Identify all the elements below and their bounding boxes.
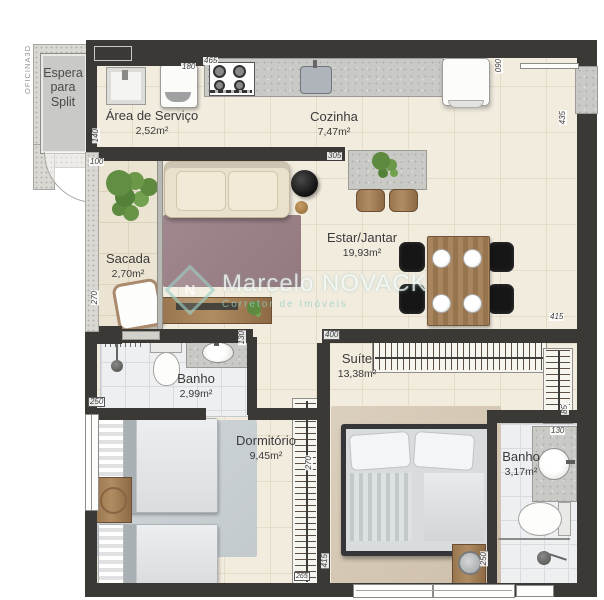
plate-icon [463,249,482,268]
sofa-cushion-icon [228,171,278,211]
closet-rack-horizontal [372,340,547,373]
kitchen-faucet-icon [313,60,317,68]
wall-right [577,44,597,585]
dim-265: 265 [294,572,310,581]
room-area: 9,45m² [222,450,310,462]
wall-bath1-south-b [248,408,318,420]
room-label-estar: Estar/Jantar 19,93m² [314,231,410,259]
laundry-faucet-icon [122,70,128,80]
room-label-cozinha: Cozinha 7,47m² [292,110,376,138]
dim-140: 140 [92,128,100,143]
refrigerator-handle-icon [448,100,484,108]
dim-305: 305 [327,152,342,160]
room-name: Estar/Jantar [314,231,410,246]
single-bed-icon [98,524,218,585]
balcony-glass-door [157,161,163,330]
room-label-banho1: Banho 2,99m² [156,372,236,400]
room-label-banho2: Banho 3,17m² [490,450,552,478]
bath2-window [516,585,554,597]
room-label-sacada: Sacada 2,70m² [98,252,158,280]
wall-mid-left [86,329,253,343]
dim-250-banho2: 250 [480,551,488,566]
dim-130-banho2: 130 [550,427,565,435]
wall-bath1-right [247,337,257,415]
room-name: Sacada [98,252,158,267]
double-bed-icon [341,424,493,556]
plate-icon [432,294,451,313]
kitchen-window [520,63,579,69]
console-plant-icon [247,301,261,315]
wall-service-south [86,147,345,161]
bed-pillow-icon [413,431,475,471]
dim-100: 100 [89,158,104,166]
dim-270-suite: 270 [305,455,313,470]
nightstand-tray-icon [100,487,127,514]
room-area: 19,93m² [314,247,410,259]
dim-85: 85 [561,404,569,415]
dim-415-suite: 415 [321,553,329,568]
shower-rod [498,538,570,540]
wardrobe [292,398,319,585]
shower-head-icon [111,360,123,372]
floor-plan: Espera para Split OFICINA3D [0,0,604,600]
bed-pillow-icon [99,525,124,584]
room-name: Área de Serviço [96,109,208,124]
balcony-rail [122,331,160,340]
bed-duvet-icon [136,525,217,584]
balcony-plant-icon [106,170,132,196]
dining-chair-icon [488,284,514,314]
bedroom-window [85,414,99,511]
cooktop-controls [210,90,252,93]
room-area: 2,99m² [156,388,236,400]
bed-pillow-icon [349,431,411,471]
side-table-icon [291,170,318,197]
espera-name: Espera para Split [40,66,86,109]
bath2-faucet-icon [566,460,575,464]
room-label-suite: Suíte 13,38m² [322,352,392,380]
island-plant-icon [372,152,390,170]
room-label-area-servico: Área de Serviço 2,52m² [96,109,208,137]
pouf-icon [295,201,308,214]
plate-icon [463,294,482,313]
room-label-espera: Espera para Split [40,66,86,109]
living-rug [163,215,301,287]
dim-415-estar: 415 [549,313,564,321]
refrigerator-icon [442,58,490,106]
room-name: Cozinha [292,110,376,125]
duct-outline [94,46,132,61]
room-area: 3,17m² [490,466,552,478]
room-area: 7,47m² [292,126,376,138]
room-name: Banho [490,450,552,465]
plate-icon [432,249,451,268]
dim-465: 465 [203,57,218,65]
bed-blanket-icon [124,525,136,584]
toilet-bowl-icon [518,502,562,536]
dim-250-banho1: 250 [88,397,105,407]
window-sash-line [356,590,512,591]
bed-duvet-icon [136,419,217,512]
room-area: 13,38m² [322,368,392,380]
bar-stool-icon [356,189,385,212]
kitchen-sink-icon [300,66,332,94]
wall-mid-right [322,329,577,343]
dim-435: 435 [559,110,567,125]
dim-270-sacada: 270 [91,290,99,305]
room-name: Dormitório [222,434,310,449]
room-name: Suíte [322,352,392,367]
tv-icon [176,303,238,310]
room-area: 2,52m² [96,125,208,137]
brand-vertical: OFICINA3D [23,45,32,94]
wall-bath2-left [487,423,497,585]
window-sill-right [575,66,598,114]
bed-throw-icon [350,473,412,541]
dim-130-banho1: 130 [238,330,246,345]
cooktop-burner-icon [213,65,226,78]
sofa-cushion-icon [176,171,226,211]
suite-window [353,584,515,598]
dining-chair-icon [488,242,514,272]
dining-chair-icon [399,284,425,314]
room-name: Banho [156,372,236,387]
dim-090: 090 [495,58,503,73]
bar-stool-icon [389,189,418,212]
window-mullion [432,585,437,597]
wall-bath1-south-a [86,408,206,420]
closet-rail [375,357,544,359]
wall-left-lower [85,508,97,585]
dim-180: 180 [181,63,196,71]
cooktop-burner-icon [233,65,246,78]
room-label-dormitorio: Dormitório 9,45m² [222,434,310,462]
bed-duvet-icon [424,473,484,541]
wardrobe-rail [306,401,308,582]
dim-400: 400 [323,330,340,340]
room-area: 2,70m² [98,268,158,280]
